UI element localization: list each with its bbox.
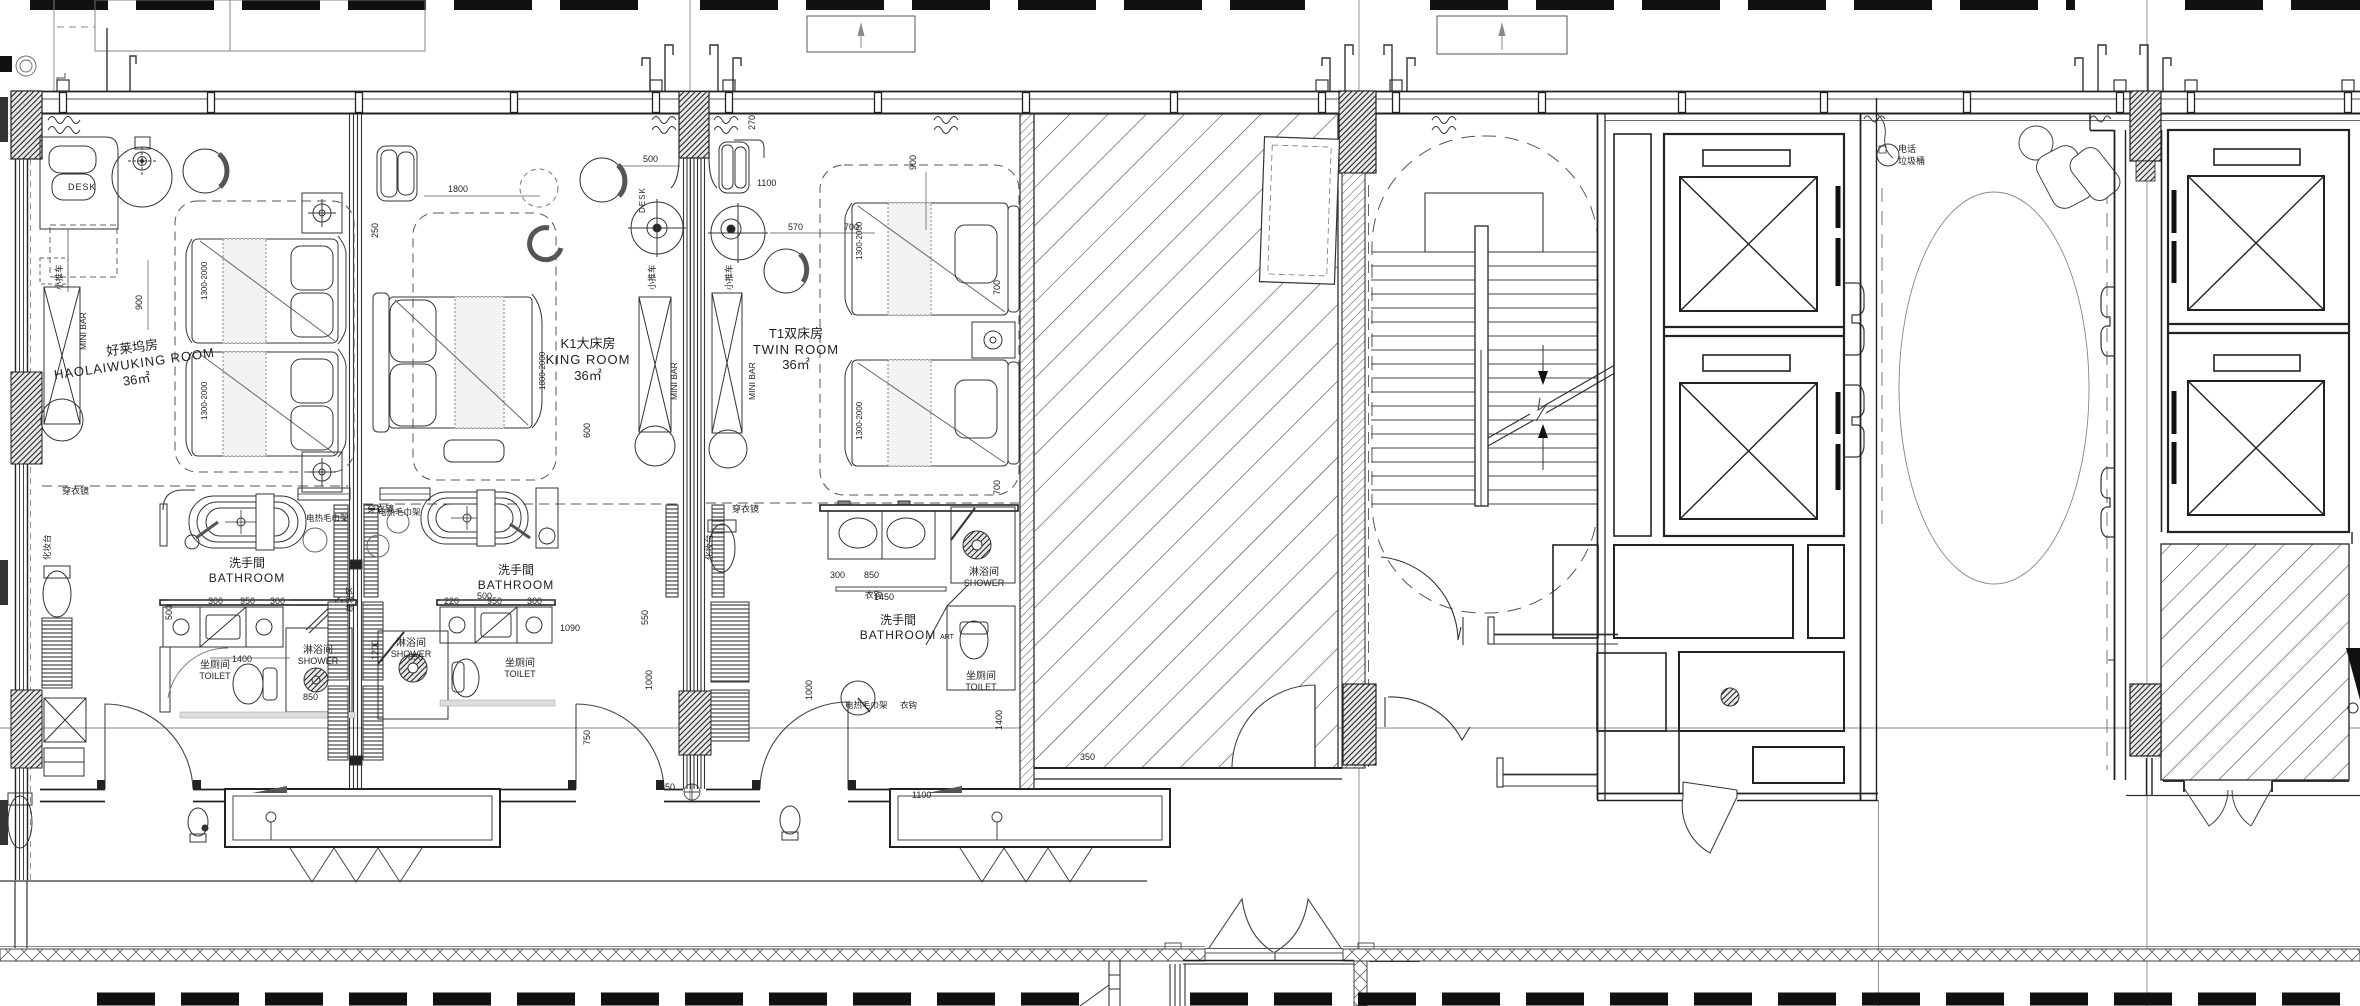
svg-text:淋浴间: 淋浴间	[969, 565, 999, 578]
svg-text:1000: 1000	[804, 680, 814, 700]
svg-text:850: 850	[408, 652, 423, 662]
svg-text:1450: 1450	[874, 592, 894, 602]
svg-text:1090: 1090	[560, 623, 580, 633]
svg-text:550: 550	[640, 610, 650, 625]
svg-text:500: 500	[643, 154, 658, 164]
svg-text:电热毛巾架: 电热毛巾架	[306, 513, 349, 523]
svg-text:1300-2000: 1300-2000	[200, 261, 209, 300]
svg-text:坐厕间: 坐厕间	[966, 669, 996, 682]
svg-text:220: 220	[444, 596, 459, 606]
svg-text:900: 900	[908, 155, 918, 170]
svg-text:500: 500	[477, 591, 492, 601]
svg-text:1300-2000: 1300-2000	[855, 221, 864, 260]
svg-text:300: 300	[208, 596, 223, 606]
svg-text:化妆台: 化妆台	[704, 534, 714, 560]
svg-text:淋浴间: 淋浴间	[396, 636, 426, 649]
svg-text:1100: 1100	[757, 178, 776, 188]
svg-text:TWIN ROOM: TWIN ROOM	[753, 342, 839, 357]
svg-text:1800: 1800	[448, 184, 468, 194]
svg-text:SHOWER: SHOWER	[298, 656, 339, 666]
svg-text:TOILET: TOILET	[199, 671, 231, 681]
svg-text:36㎡: 36㎡	[574, 368, 601, 383]
svg-text:洗手間: 洗手間	[880, 613, 916, 627]
svg-text:化妆台: 化妆台	[42, 534, 52, 560]
svg-text:MINI BAR: MINI BAR	[747, 362, 757, 400]
svg-text:850: 850	[864, 570, 879, 580]
svg-text:SHOWER: SHOWER	[964, 578, 1005, 588]
svg-text:衣钩: 衣钩	[900, 700, 917, 710]
svg-text:500: 500	[164, 605, 174, 620]
svg-text:250: 250	[370, 223, 380, 238]
svg-text:700: 700	[992, 480, 1002, 495]
svg-text:1200: 1200	[370, 640, 380, 660]
svg-text:垃圾桶: 垃圾桶	[1898, 155, 1925, 166]
svg-text:TOILET: TOILET	[965, 682, 997, 692]
svg-text:梳妆区: 梳妆区	[345, 586, 355, 612]
svg-text:300: 300	[527, 596, 542, 606]
svg-text:350: 350	[1080, 752, 1095, 762]
svg-text:淋浴间: 淋浴间	[303, 643, 333, 656]
svg-text:小推车: 小推车	[724, 264, 734, 290]
svg-text:600: 600	[582, 423, 592, 438]
svg-text:1300-2000: 1300-2000	[200, 381, 209, 420]
svg-text:坐厕间: 坐厕间	[200, 658, 230, 671]
svg-text:穿衣镜: 穿衣镜	[732, 503, 759, 514]
svg-text:T1双床房: T1双床房	[769, 326, 823, 341]
svg-text:穿衣镜: 穿衣镜	[62, 485, 89, 496]
svg-text:TOILET: TOILET	[504, 669, 536, 679]
svg-text:950: 950	[240, 596, 255, 606]
svg-text:电热毛巾架: 电热毛巾架	[378, 507, 421, 517]
svg-text:900: 900	[134, 295, 144, 310]
svg-text:KING ROOM: KING ROOM	[546, 352, 631, 367]
svg-text:洗手間: 洗手間	[498, 563, 534, 577]
svg-text:BATHROOM: BATHROOM	[209, 571, 285, 585]
svg-text:750: 750	[582, 730, 592, 745]
svg-text:1300-2000: 1300-2000	[855, 401, 864, 440]
svg-text:电话: 电话	[1898, 143, 1916, 154]
svg-text:DESK: DESK	[638, 187, 647, 213]
svg-text:300: 300	[270, 596, 285, 606]
svg-text:MINI BAR: MINI BAR	[78, 312, 88, 350]
svg-text:700: 700	[992, 280, 1002, 295]
svg-text:270: 270	[747, 115, 757, 130]
svg-text:BATHROOM: BATHROOM	[860, 628, 936, 642]
svg-text:36㎡: 36㎡	[782, 357, 809, 372]
svg-text:MINI BAR: MINI BAR	[669, 362, 679, 400]
svg-text:电热毛巾架: 电热毛巾架	[845, 700, 888, 710]
svg-text:1400: 1400	[232, 654, 252, 664]
svg-text:300: 300	[830, 570, 845, 580]
svg-text:DESK: DESK	[68, 182, 97, 192]
svg-text:1400: 1400	[994, 710, 1004, 730]
svg-text:1800-2000: 1800-2000	[538, 351, 547, 390]
svg-text:BATHROOM: BATHROOM	[478, 578, 554, 592]
svg-text:洗手間: 洗手間	[229, 556, 265, 570]
svg-text:小推车: 小推车	[647, 264, 657, 290]
svg-text:坐厕间: 坐厕间	[505, 656, 535, 669]
svg-text:550: 550	[660, 782, 675, 792]
svg-text:850: 850	[303, 692, 318, 702]
svg-text:ART: ART	[940, 634, 955, 641]
svg-text:1100: 1100	[912, 790, 931, 800]
svg-text:小推车: 小推车	[54, 264, 64, 290]
svg-text:K1大床房: K1大床房	[561, 336, 616, 351]
svg-text:570: 570	[788, 222, 803, 232]
svg-text:1000: 1000	[644, 670, 654, 690]
